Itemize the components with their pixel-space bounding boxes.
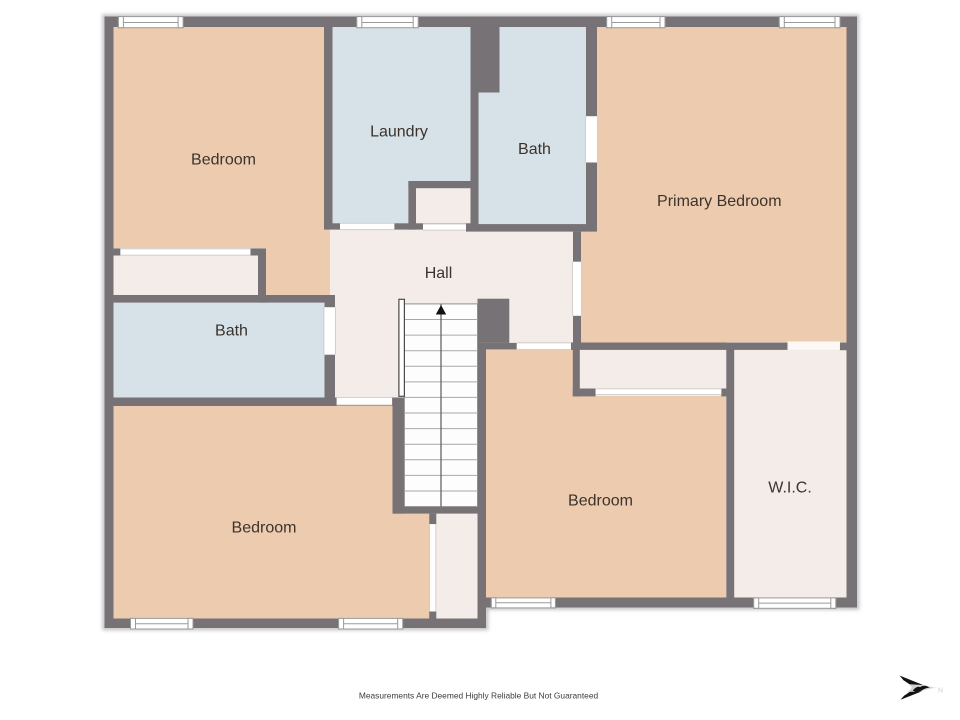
- svg-text:Bedroom: Bedroom: [232, 520, 297, 537]
- svg-text:Measurements Are Deemed Highly: Measurements Are Deemed Highly Reliable …: [359, 691, 599, 701]
- svg-text:Hall: Hall: [425, 265, 453, 282]
- svg-text:W.I.C.: W.I.C.: [768, 480, 812, 497]
- svg-text:Bath: Bath: [518, 141, 551, 158]
- svg-text:Bedroom: Bedroom: [191, 152, 256, 169]
- svg-text:Bedroom: Bedroom: [568, 493, 633, 510]
- svg-text:N: N: [938, 688, 943, 695]
- svg-text:Laundry: Laundry: [370, 124, 428, 141]
- svg-text:Primary Bedroom: Primary Bedroom: [657, 193, 781, 210]
- svg-text:Bath: Bath: [215, 323, 248, 340]
